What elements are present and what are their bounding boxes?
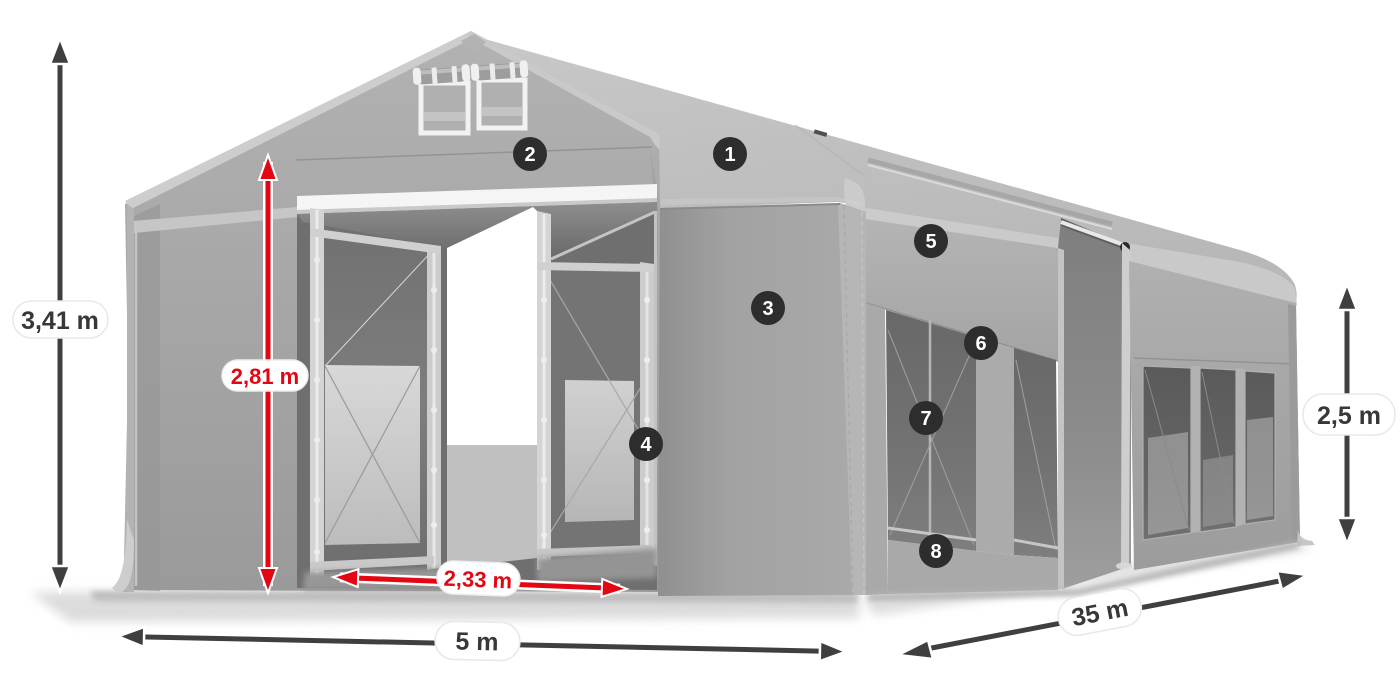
svg-text:2,33 m: 2,33 m (443, 566, 512, 594)
svg-text:2: 2 (524, 144, 535, 166)
svg-text:2,81 m: 2,81 m (231, 364, 300, 389)
svg-text:3,41 m: 3,41 m (21, 307, 99, 335)
svg-text:4: 4 (640, 434, 652, 456)
svg-text:8: 8 (930, 541, 941, 563)
svg-text:2,5 m: 2,5 m (1317, 402, 1381, 430)
svg-text:1: 1 (724, 144, 735, 166)
svg-text:5 m: 5 m (455, 628, 499, 657)
svg-text:5: 5 (925, 231, 936, 253)
svg-text:7: 7 (920, 408, 931, 430)
svg-text:3: 3 (762, 298, 773, 320)
svg-text:6: 6 (975, 333, 986, 355)
